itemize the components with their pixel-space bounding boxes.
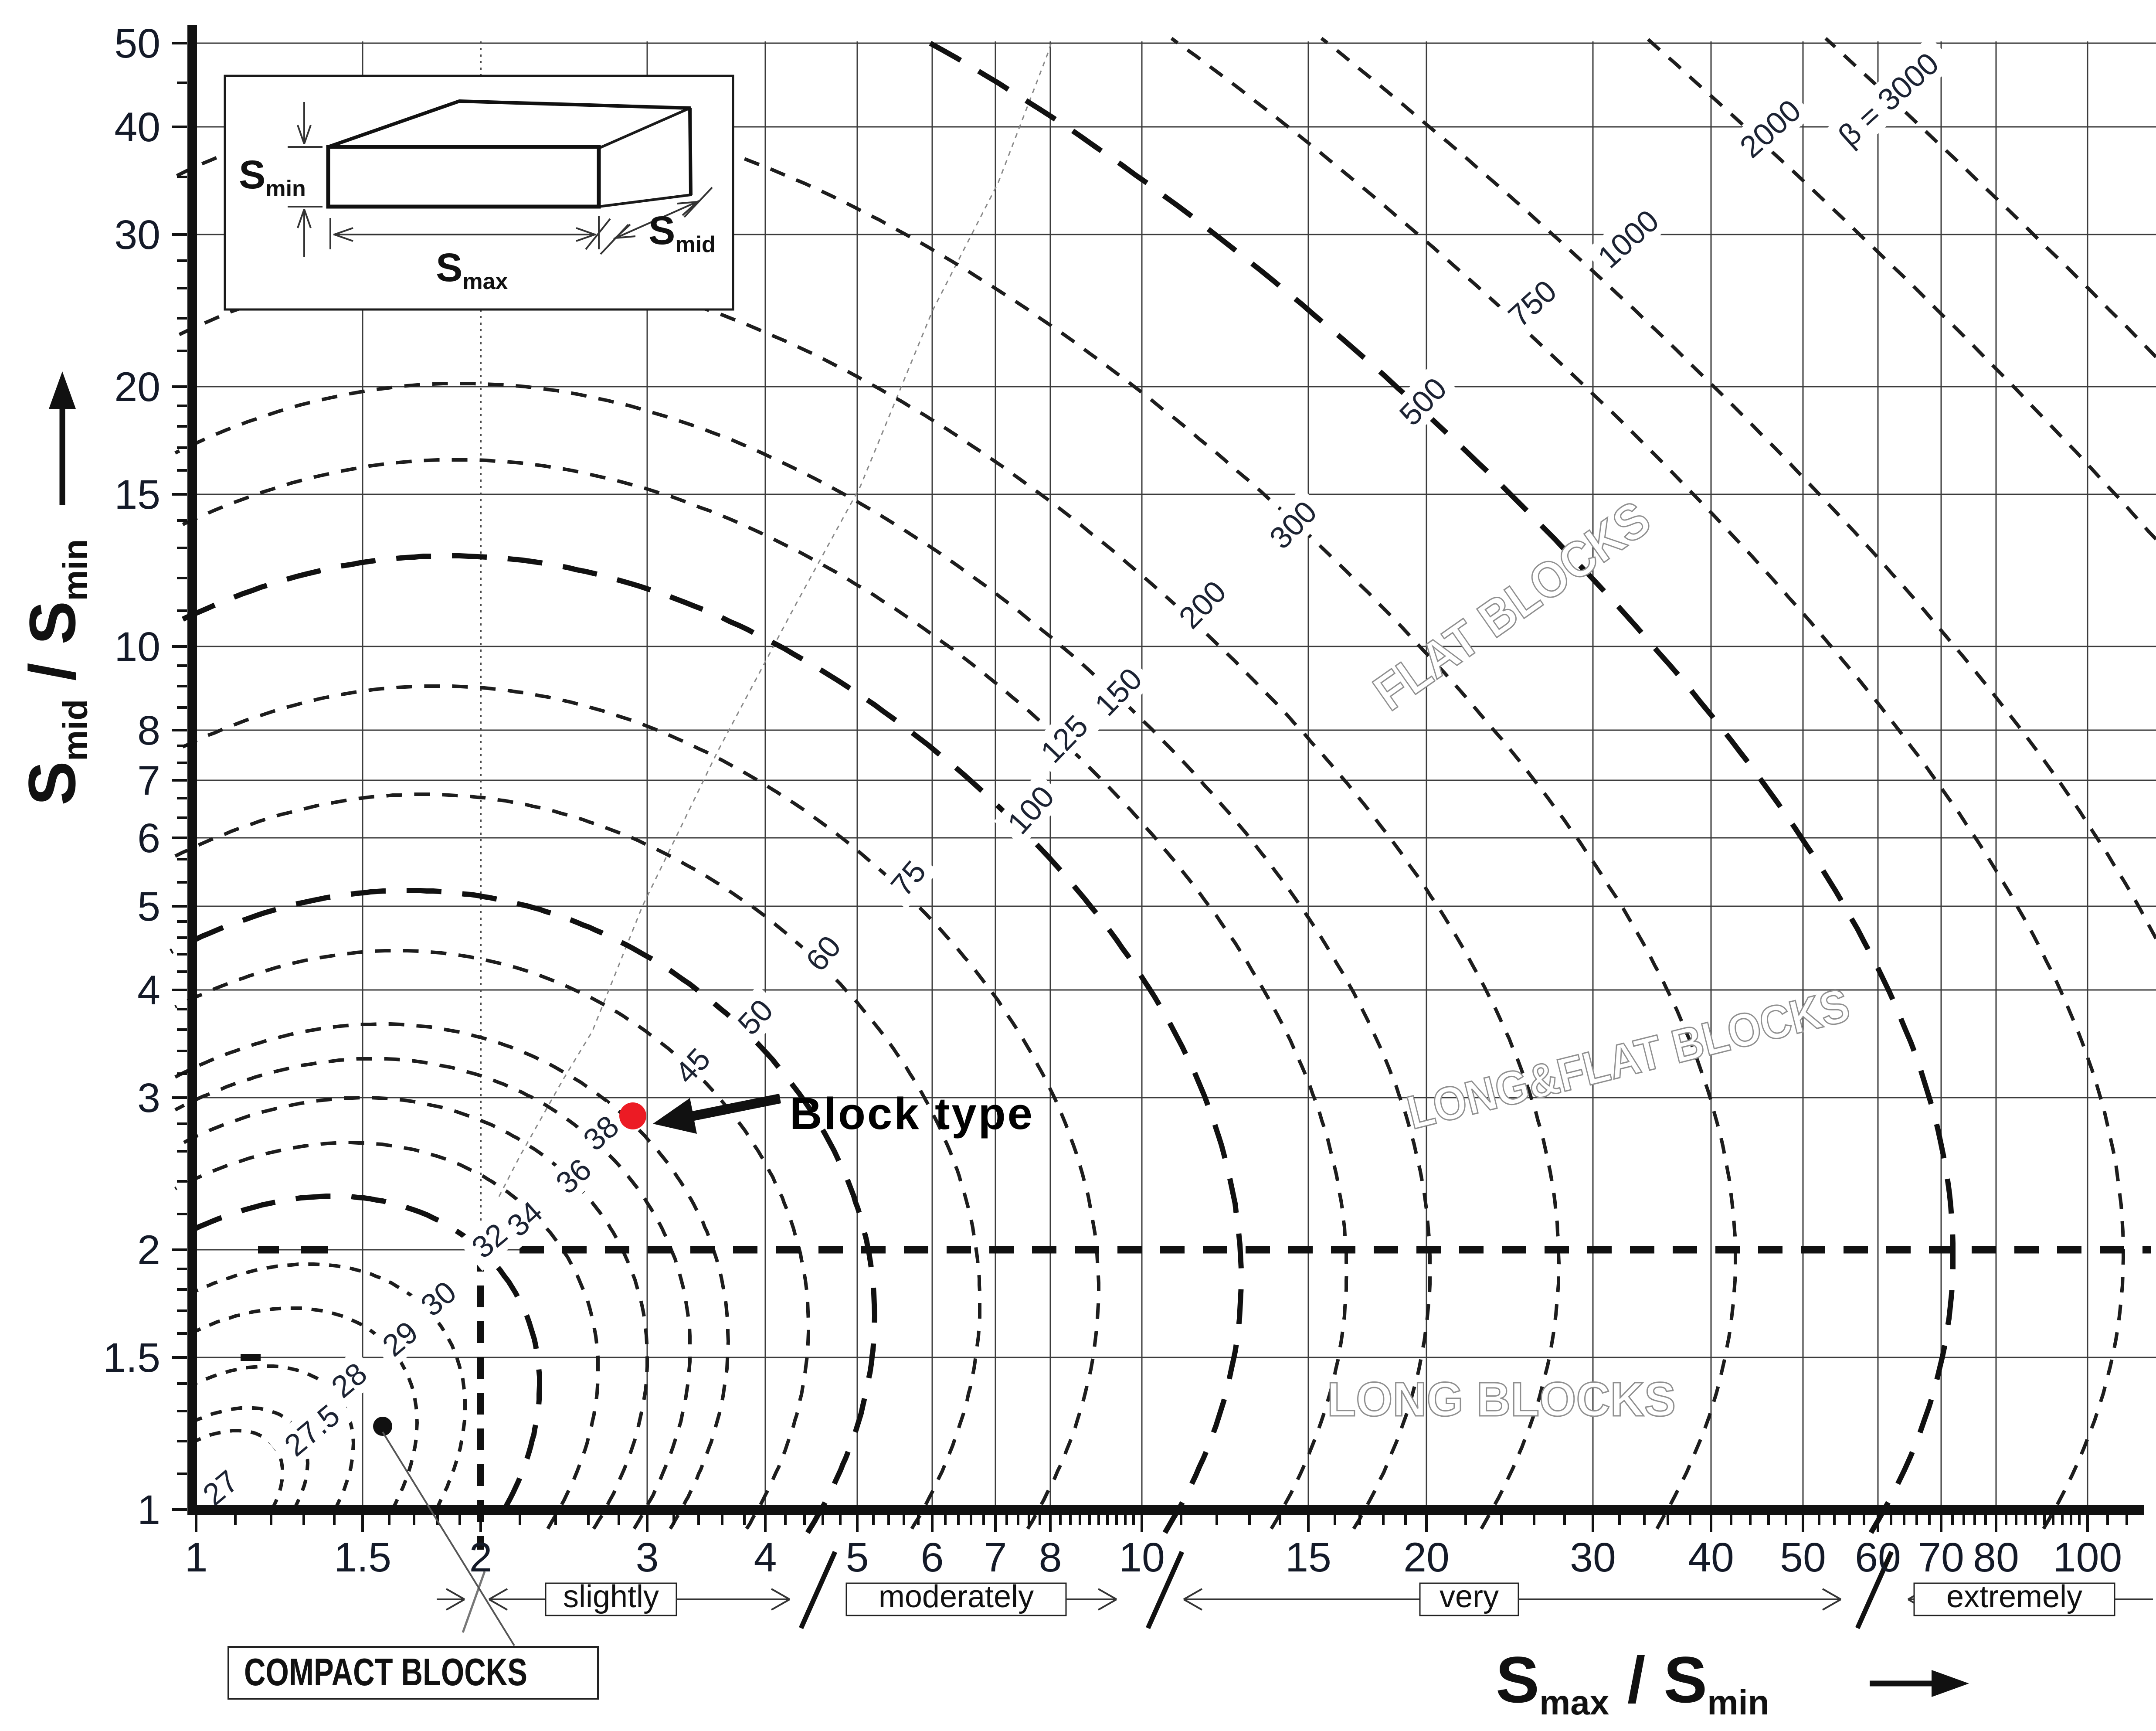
svg-text:50: 50	[1780, 1534, 1826, 1581]
svg-text:3: 3	[636, 1534, 659, 1581]
svg-text:5: 5	[137, 884, 160, 930]
svg-text:10: 10	[114, 624, 160, 670]
svg-text:20: 20	[1403, 1534, 1450, 1581]
svg-text:100: 100	[2053, 1534, 2122, 1581]
svg-text:4: 4	[754, 1534, 777, 1581]
svg-text:30: 30	[1570, 1534, 1616, 1581]
svg-text:LONG BLOCKS: LONG BLOCKS	[1327, 1373, 1676, 1426]
svg-text:20: 20	[114, 364, 160, 410]
svg-text:1.5: 1.5	[103, 1335, 160, 1381]
svg-text:5: 5	[846, 1534, 869, 1581]
svg-text:1.5: 1.5	[334, 1534, 391, 1581]
svg-text:40: 40	[1688, 1534, 1734, 1581]
svg-text:2: 2	[469, 1534, 492, 1581]
svg-text:10: 10	[1119, 1534, 1165, 1581]
svg-text:Block type: Block type	[790, 1088, 1034, 1139]
svg-text:15: 15	[1285, 1534, 1331, 1581]
svg-text:60: 60	[1855, 1534, 1901, 1581]
svg-text:slightly: slightly	[563, 1579, 659, 1614]
svg-text:very: very	[1440, 1579, 1499, 1614]
svg-text:1: 1	[185, 1534, 208, 1581]
svg-text:moderately: moderately	[879, 1579, 1034, 1614]
svg-text:7: 7	[984, 1534, 1007, 1581]
svg-text:1: 1	[137, 1487, 160, 1533]
svg-text:80: 80	[1973, 1534, 2019, 1581]
svg-text:8: 8	[1039, 1534, 1062, 1581]
svg-text:40: 40	[114, 104, 160, 150]
svg-text:6: 6	[921, 1534, 944, 1581]
svg-text:15: 15	[114, 472, 160, 518]
svg-text:70: 70	[1918, 1534, 1964, 1581]
svg-text:30: 30	[114, 212, 160, 258]
svg-text:7: 7	[137, 758, 160, 804]
svg-text:3: 3	[137, 1075, 160, 1121]
svg-text:extremely: extremely	[1946, 1579, 2082, 1614]
svg-text:4: 4	[137, 967, 160, 1013]
svg-text:2: 2	[137, 1227, 160, 1273]
svg-text:50: 50	[114, 20, 160, 67]
svg-text:6: 6	[137, 815, 160, 861]
svg-text:8: 8	[137, 707, 160, 754]
svg-text:COMPACT BLOCKS: COMPACT BLOCKS	[244, 1650, 527, 1694]
